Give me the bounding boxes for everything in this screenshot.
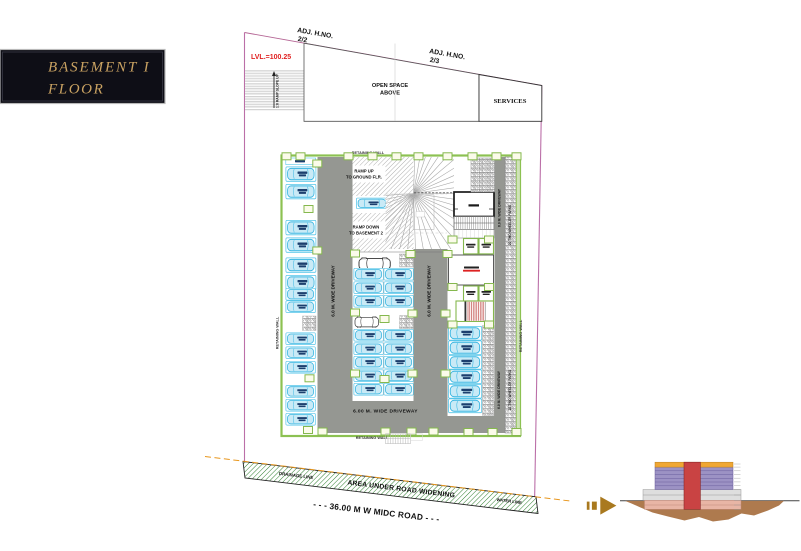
svg-text:6.0 M. WIDE DRIVEWAY: 6.0 M. WIDE DRIVEWAY xyxy=(331,265,336,316)
svg-text:ABOVE: ABOVE xyxy=(380,91,400,97)
svg-text:1:8 RAMP SLOPE UP: 1:8 RAMP SLOPE UP xyxy=(276,73,280,108)
svg-text:6.0 M. WIDE DRIVEWAY: 6.0 M. WIDE DRIVEWAY xyxy=(497,370,501,409)
svg-text:RETAINING WALL: RETAINING WALL xyxy=(356,436,389,440)
svg-text:RAMP UP: RAMP UP xyxy=(354,169,373,174)
svg-text:22 TWO WHEELER PARKS: 22 TWO WHEELER PARKS xyxy=(508,370,512,411)
svg-text:FLOOR: FLOOR xyxy=(47,82,104,98)
svg-text:LVL.=100.25: LVL.=100.25 xyxy=(251,54,291,61)
svg-text:RETAINING WALL: RETAINING WALL xyxy=(276,316,280,349)
svg-text:BASEMENT I: BASEMENT I xyxy=(48,60,150,76)
svg-text:6.0 M. WIDE DRIVEWAY: 6.0 M. WIDE DRIVEWAY xyxy=(427,265,432,316)
svg-text:SERVICES: SERVICES xyxy=(494,98,527,105)
svg-text:OPEN SPACE: OPEN SPACE xyxy=(372,83,409,89)
svg-text:RETAINING WALL: RETAINING WALL xyxy=(519,319,523,352)
svg-text:TO BASEMENT 2: TO BASEMENT 2 xyxy=(349,231,384,236)
svg-text:6.00 M. WIDE DRIVEWAY: 6.00 M. WIDE DRIVEWAY xyxy=(353,409,418,415)
svg-text:20 TWO WHEELER PARKS: 20 TWO WHEELER PARKS xyxy=(508,205,512,246)
svg-text:6.0 M. WIDE DRIVEWAY: 6.0 M. WIDE DRIVEWAY xyxy=(498,188,502,227)
svg-text:TO GROUND FLR.: TO GROUND FLR. xyxy=(346,175,382,180)
svg-text:RAMP DOWN: RAMP DOWN xyxy=(353,225,380,230)
